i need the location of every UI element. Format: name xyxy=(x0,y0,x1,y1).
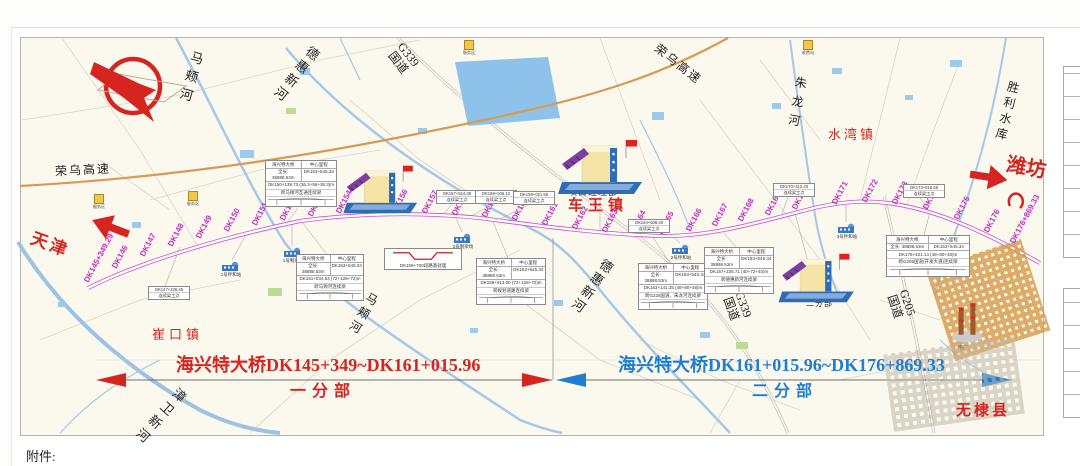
info-box-header: 海兴特大桥中心里程 xyxy=(477,259,545,267)
info-box-subheader: 全长: 38888.53mDK153+545.34 xyxy=(297,263,363,276)
section1-range-label: 海兴特大桥DK145+349~DK161+015.96 xyxy=(176,356,476,375)
info-box-chainage: DK158+013.00 (72+128+72)m xyxy=(477,280,545,288)
poi-label: 服务区 xyxy=(456,50,482,56)
poi-label: 收费站 xyxy=(795,50,821,56)
poi-square-icon xyxy=(188,191,198,201)
section2-name-label: 二分部 xyxy=(752,384,818,401)
info-box-header: 海兴特大桥中心里程 xyxy=(705,248,773,256)
info-box-structure: 跨规划道路连续梁 xyxy=(477,288,545,296)
power-plant-icon xyxy=(950,300,984,344)
info-box-chainage: DK163+141.35 (48+80+48)m xyxy=(639,285,707,293)
legend-table-partial-top xyxy=(1063,66,1080,258)
info-box-structure: 跨马颊河连续梁 xyxy=(297,284,363,292)
power-plant-label: 电厂 xyxy=(958,346,968,351)
poi-icon-服务区-1: 服务区 xyxy=(86,194,112,210)
poi-square-icon xyxy=(94,194,104,204)
info-box-chainage: DK151+034.53 (72+128+72)m xyxy=(297,276,363,284)
info-box-chainage: DK167+226.71 (40+72+40)m xyxy=(705,269,773,277)
workpoint-box-4: DK159+021.55连续梁工点 xyxy=(513,191,555,205)
bridge-info-box-6: 海兴特大桥中心里程全长: 38888.53mDK153+545.34DK176+… xyxy=(886,235,970,277)
workpoint-box-2: DK157+524.38连续梁工点 xyxy=(436,190,478,204)
division2-building xyxy=(778,252,858,304)
info-box-subheader: 全长: 38888.53mDK153+545.34 xyxy=(639,272,707,285)
station-label: 2号拌和站 xyxy=(664,255,698,261)
section1-name-label: 一分部 xyxy=(290,384,356,401)
workpoint-box-5: DK164+508.40连续梁工点 xyxy=(628,219,670,233)
subgrade-section-box: DK159+700段路基处理 xyxy=(384,248,462,270)
workpoint-box-3: DK158+046.12连续梁工点 xyxy=(475,190,517,204)
cuikou-town-label: 崔口镇 xyxy=(152,328,203,342)
station-label: 3号拌和站 xyxy=(830,234,864,240)
workpoint-box-1: DK147+236.45连续梁工点 xyxy=(148,286,190,300)
info-box-structure: 跨G228国道、朱龙河连续梁 xyxy=(639,293,707,301)
info-box-header: 海兴特大桥中心里程 xyxy=(639,264,707,272)
site-layout-map-page: 天津 潍坊 荣乌高速 荣乌高速 G339 国道 G339 国道 G205 国道 … xyxy=(0,0,1080,466)
workpoint-box-7: DK173+618.55连续梁工点 xyxy=(903,184,945,198)
wudi-county-label: 无棣县 xyxy=(956,404,1010,420)
poi-icon-服务区-2: 服务区 xyxy=(180,191,206,207)
rongwu-expressway-label-left: 荣乌高速 xyxy=(55,163,112,179)
station-icon-3号拌和站: 3号拌和站 xyxy=(830,222,864,240)
info-box-subheader: 全长: 38888.53mDK153+545.34 xyxy=(705,256,773,269)
shuiwan-town-label: 水湾镇 xyxy=(828,128,876,142)
info-box-chainage: DK176+421.14 (48+80+48)m xyxy=(887,251,969,259)
poi-square-icon xyxy=(464,40,474,50)
poi-label: 服务区 xyxy=(86,204,112,210)
info-box-header: 海兴特大桥中心里程 xyxy=(297,255,363,263)
info-box-header: 海兴特大桥中心里程 xyxy=(887,236,969,244)
station-label: 1号拌和站 xyxy=(214,272,248,278)
project-hq-building xyxy=(558,138,646,196)
info-box-subheader: 全长: 38888.53mDK153+545.34 xyxy=(887,244,969,252)
info-box-structure: 跨马颊河互通连续梁 xyxy=(266,190,336,198)
section2-range-label: 海兴特大桥DK161+015.96~DK176+869.33 xyxy=(618,356,945,375)
culvert-caption: DK159+700段路基处理 xyxy=(385,262,461,269)
bridge-info-box-1: 海兴特大桥中心里程全长: 38888.53mDK153+545.34DK150+… xyxy=(265,160,337,207)
bridge-info-box-4: 海兴特大桥中心里程全长: 38888.53mDK153+545.34DK163+… xyxy=(638,263,708,310)
station-icon-2号拌和站: 2号拌和站 xyxy=(664,243,698,261)
division1-building xyxy=(343,164,421,215)
legend-table-partial-bottom xyxy=(1063,288,1080,418)
info-box-structure: 跨G205国道(开发大道)连续梁 xyxy=(887,259,969,267)
poi-icon-收费站-4: 收费站 xyxy=(795,40,821,56)
info-box-chainage: DK150+139.73 (36.3+56+36.3)m xyxy=(266,182,336,190)
poi-label: 服务区 xyxy=(180,201,206,207)
info-box-structure: 跨德惠新河连续梁 xyxy=(705,277,773,285)
bridge-info-box-3: 海兴特大桥中心里程全长: 38888.53mDK153+545.34DK158+… xyxy=(476,258,546,305)
info-box-subheader: 全长: 38888.53mDK153+545.34 xyxy=(266,169,336,182)
bridge-info-box-2: 海兴特大桥中心里程全长: 38888.53mDK153+545.34DK151+… xyxy=(296,254,364,301)
info-box-header: 海兴特大桥中心里程 xyxy=(266,161,336,169)
workpoint-box-6: DK170+312.20连续梁工点 xyxy=(773,183,815,197)
station-icon-1号拌和站: 1号拌和站 xyxy=(214,260,248,278)
bridge-info-box-5: 海兴特大桥中心里程全长: 38888.53mDK153+545.34DK167+… xyxy=(704,247,774,294)
attachment-label: 附件: xyxy=(26,450,56,464)
poi-square-icon xyxy=(803,40,813,50)
info-box-subheader: 全长: 38888.53mDK153+545.34 xyxy=(477,267,545,280)
poi-icon-服务区-3: 服务区 xyxy=(456,40,482,56)
